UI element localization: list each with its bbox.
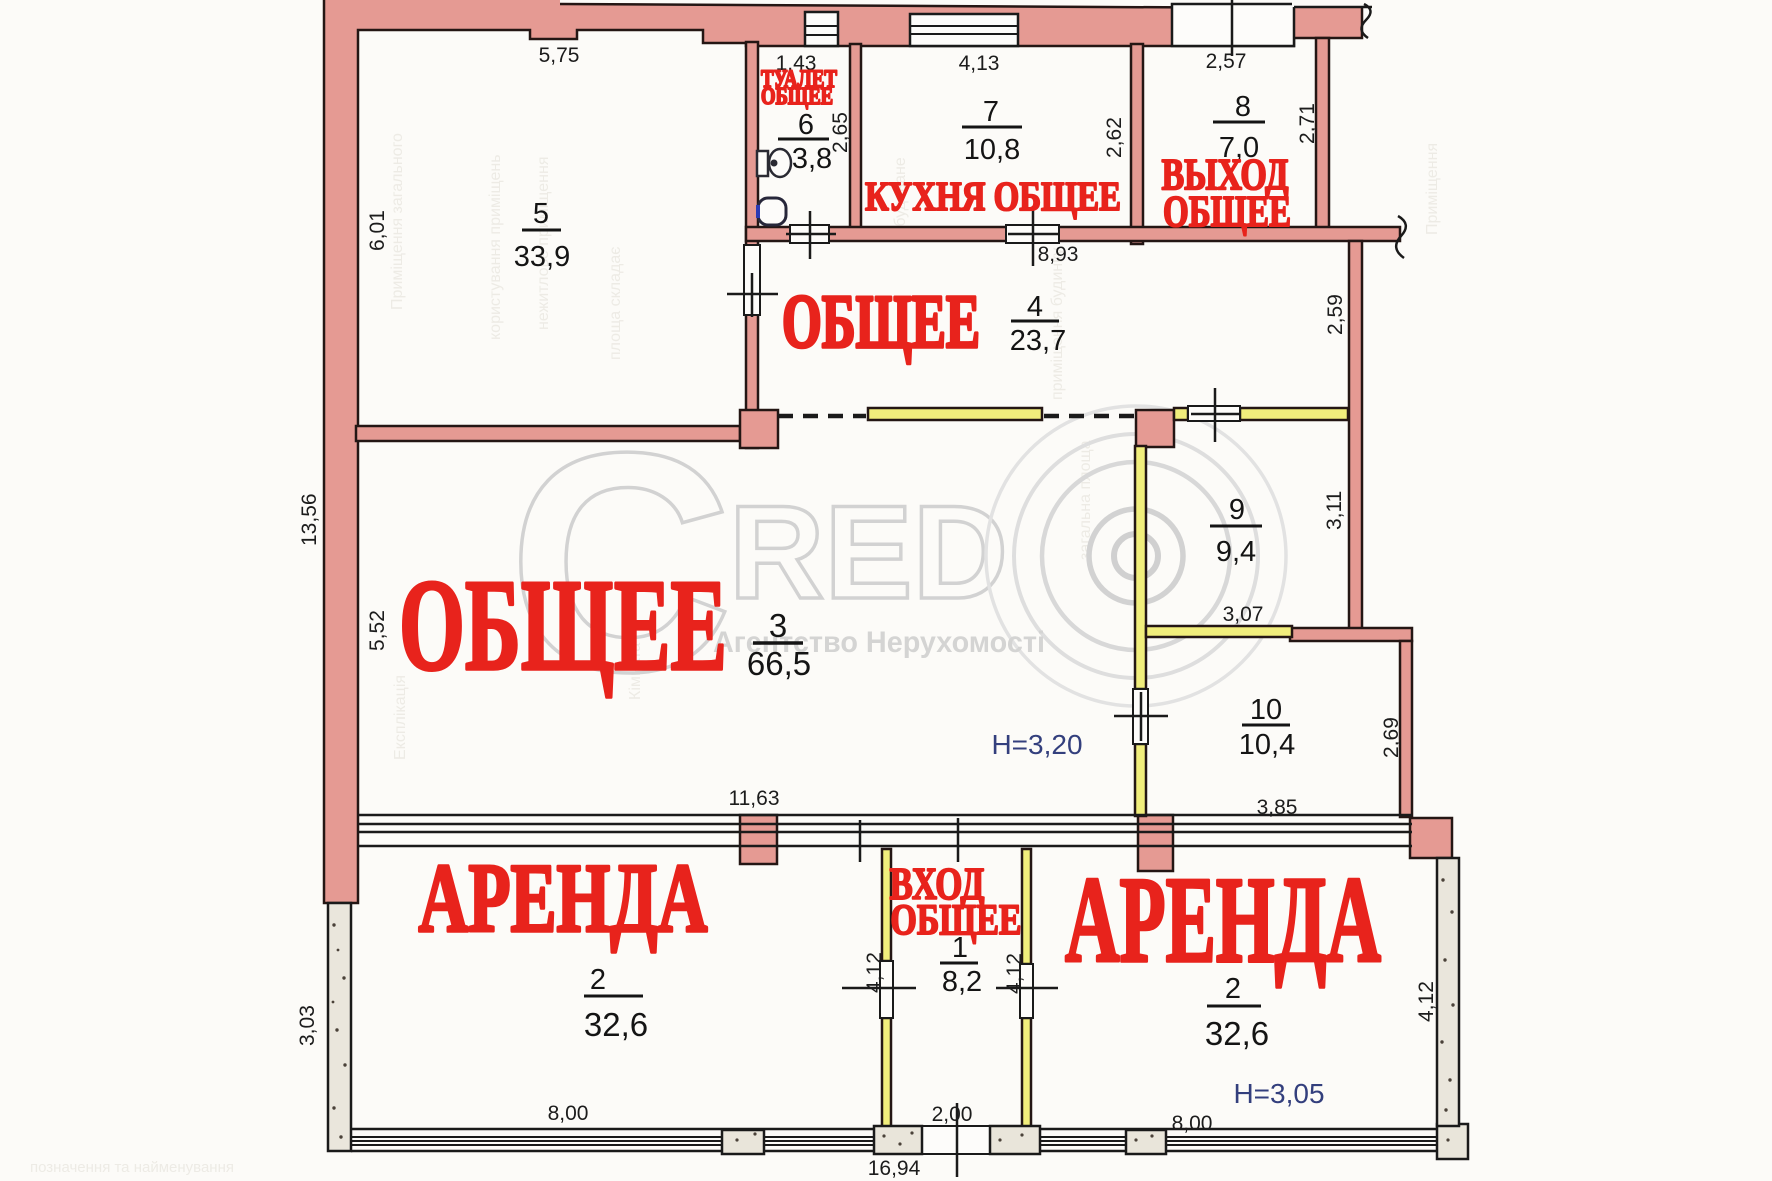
svg-text:2,71: 2,71 <box>1296 103 1319 144</box>
svg-text:8,2: 8,2 <box>942 966 982 998</box>
svg-text:ОБЩЕЕ: ОБЩЕЕ <box>1163 187 1291 236</box>
svg-text:Приміщення загального: Приміщення загального <box>389 133 406 310</box>
svg-text:16,94: 16,94 <box>868 1157 921 1180</box>
svg-text:9: 9 <box>1229 494 1245 526</box>
svg-text:5,52: 5,52 <box>366 610 389 651</box>
svg-text:RED: RED <box>729 479 1008 627</box>
svg-text:2,57: 2,57 <box>1206 50 1247 73</box>
svg-text:66,5: 66,5 <box>747 645 811 682</box>
svg-text:АРЕНДА: АРЕНДА <box>1065 851 1381 988</box>
svg-text:13,56: 13,56 <box>298 493 321 546</box>
svg-text:площа складає: площа складає <box>607 247 624 360</box>
svg-text:8,00: 8,00 <box>548 1102 589 1125</box>
svg-text:6: 6 <box>798 109 814 141</box>
svg-text:3,8: 3,8 <box>792 143 832 175</box>
svg-text:32,6: 32,6 <box>1205 1015 1269 1052</box>
svg-text:ОБЩЕЕ: ОБЩЕЕ <box>761 84 833 110</box>
svg-text:ОБЩЕЕ: ОБЩЕЕ <box>399 553 727 698</box>
svg-text:КУХНЯ ОБЩЕЕ: КУХНЯ ОБЩЕЕ <box>865 173 1121 219</box>
svg-text:позначення та найменування: позначення та найменування <box>30 1159 234 1176</box>
svg-text:приміщення будинку: приміщення будинку <box>1049 248 1066 400</box>
svg-text:5: 5 <box>533 198 549 230</box>
svg-text:2,69: 2,69 <box>1380 717 1403 758</box>
svg-text:3,03: 3,03 <box>296 1005 319 1046</box>
svg-text:4,12: 4,12 <box>1003 953 1026 994</box>
svg-text:33,9: 33,9 <box>514 241 570 273</box>
svg-text:2,62: 2,62 <box>1103 117 1126 158</box>
svg-text:23,7: 23,7 <box>1010 325 1066 357</box>
svg-text:9,4: 9,4 <box>1216 536 1256 568</box>
svg-text:8,00: 8,00 <box>1172 1112 1213 1135</box>
svg-text:3,85: 3,85 <box>1257 796 1298 819</box>
svg-text:4,12: 4,12 <box>1415 981 1438 1022</box>
svg-text:H=3,20: H=3,20 <box>991 729 1082 760</box>
svg-text:3,11: 3,11 <box>1323 491 1346 530</box>
svg-text:2,65: 2,65 <box>829 112 852 153</box>
svg-text:3,07: 3,07 <box>1223 603 1264 626</box>
svg-text:Приміщення: Приміщення <box>1424 143 1441 235</box>
svg-text:3: 3 <box>769 607 787 644</box>
svg-text:7: 7 <box>983 96 999 128</box>
svg-text:10: 10 <box>1250 694 1282 726</box>
svg-text:користування приміщень: користування приміщень <box>487 154 504 340</box>
svg-text:11,63: 11,63 <box>729 787 780 810</box>
svg-text:8: 8 <box>1235 91 1251 123</box>
svg-text:2,00: 2,00 <box>932 1103 973 1126</box>
svg-text:10,8: 10,8 <box>964 134 1020 166</box>
svg-text:8,93: 8,93 <box>1038 243 1079 266</box>
svg-text:АРЕНДА: АРЕНДА <box>419 844 708 953</box>
svg-text:ОБЩЕЕ: ОБЩЕЕ <box>782 280 980 364</box>
svg-text:4,12: 4,12 <box>863 952 886 993</box>
svg-text:H=3,05: H=3,05 <box>1233 1078 1324 1109</box>
svg-text:4,13: 4,13 <box>959 52 1000 75</box>
svg-text:10,4: 10,4 <box>1239 729 1295 761</box>
svg-text:2: 2 <box>590 964 606 996</box>
svg-text:6,01: 6,01 <box>366 210 389 251</box>
svg-text:2,59: 2,59 <box>1324 294 1347 335</box>
svg-text:5,75: 5,75 <box>539 44 580 67</box>
svg-text:4: 4 <box>1027 291 1043 323</box>
svg-text:32,6: 32,6 <box>584 1006 648 1043</box>
svg-text:ОБЩЕЕ: ОБЩЕЕ <box>891 897 1022 944</box>
